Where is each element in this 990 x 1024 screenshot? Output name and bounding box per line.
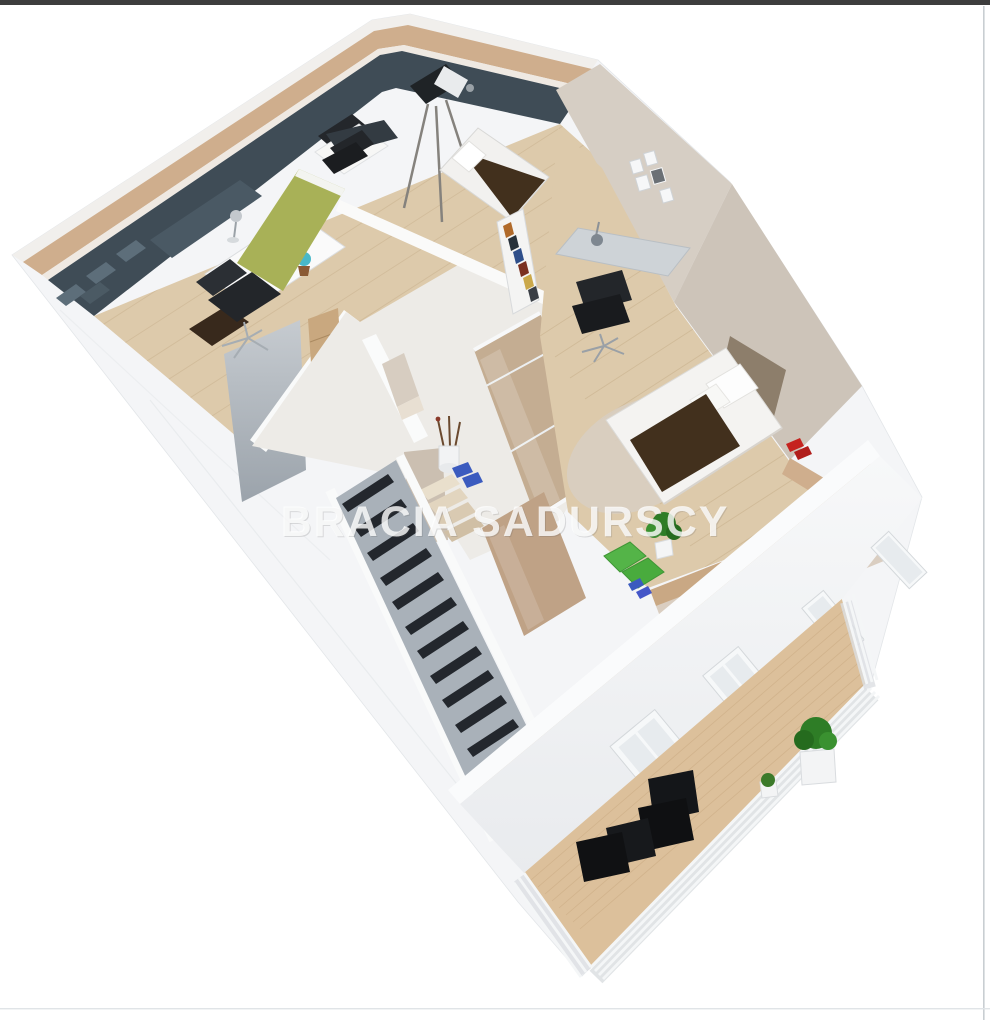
top-border-bar <box>0 0 990 5</box>
umbrella-tip <box>436 417 441 422</box>
telescope-eyepiece <box>466 84 474 92</box>
balcony-planter <box>800 749 836 785</box>
bottom-edge-line <box>0 1008 990 1009</box>
globe-stand <box>298 266 310 276</box>
floor-plan-render: BRACIA SADURSCY BRACIA SADURSCY <box>0 0 990 1024</box>
floor-plan-image: BRACIA SADURSCY BRACIA SADURSCY <box>0 0 990 1024</box>
bedroom-lamp <box>591 234 603 246</box>
balcony-plant <box>819 732 837 750</box>
desk-lamp-base <box>227 237 239 243</box>
watermark-text: BRACIA SADURSCY <box>281 498 730 546</box>
desk-lamp <box>230 210 242 222</box>
balcony-plant <box>794 730 814 750</box>
right-edge-line <box>983 6 985 1020</box>
balcony-plant-small <box>761 773 775 787</box>
